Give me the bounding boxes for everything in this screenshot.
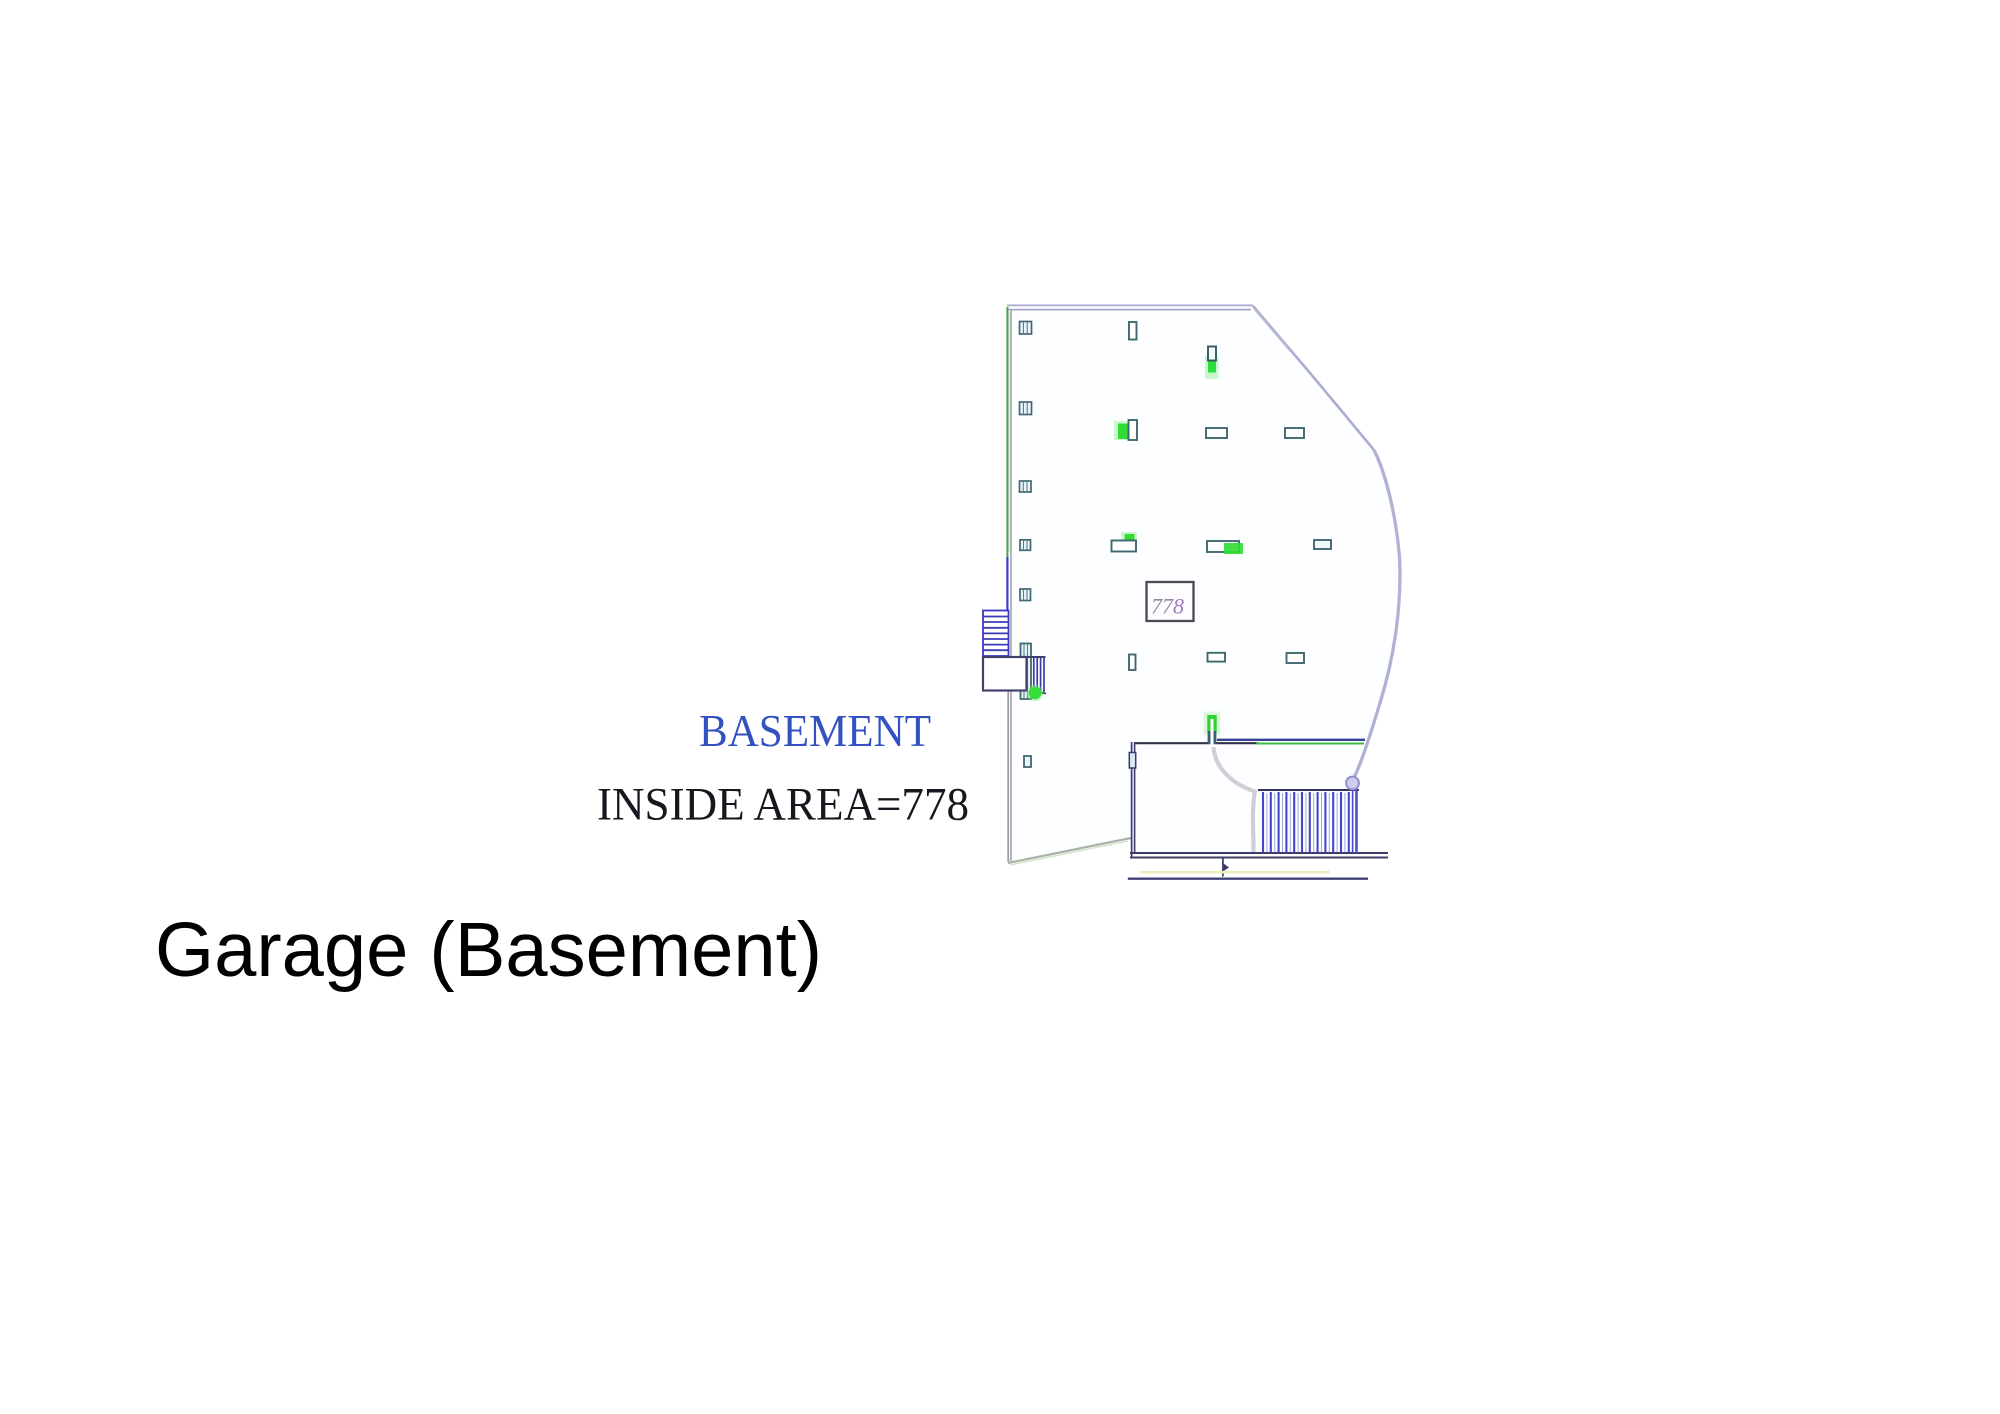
- svg-text:INSIDE AREA=778: INSIDE AREA=778: [597, 780, 969, 831]
- svg-text:778: 778: [1151, 594, 1184, 619]
- svg-text:Garage (Basement): Garage (Basement): [155, 907, 822, 993]
- svg-text:BASEMENT: BASEMENT: [699, 705, 931, 756]
